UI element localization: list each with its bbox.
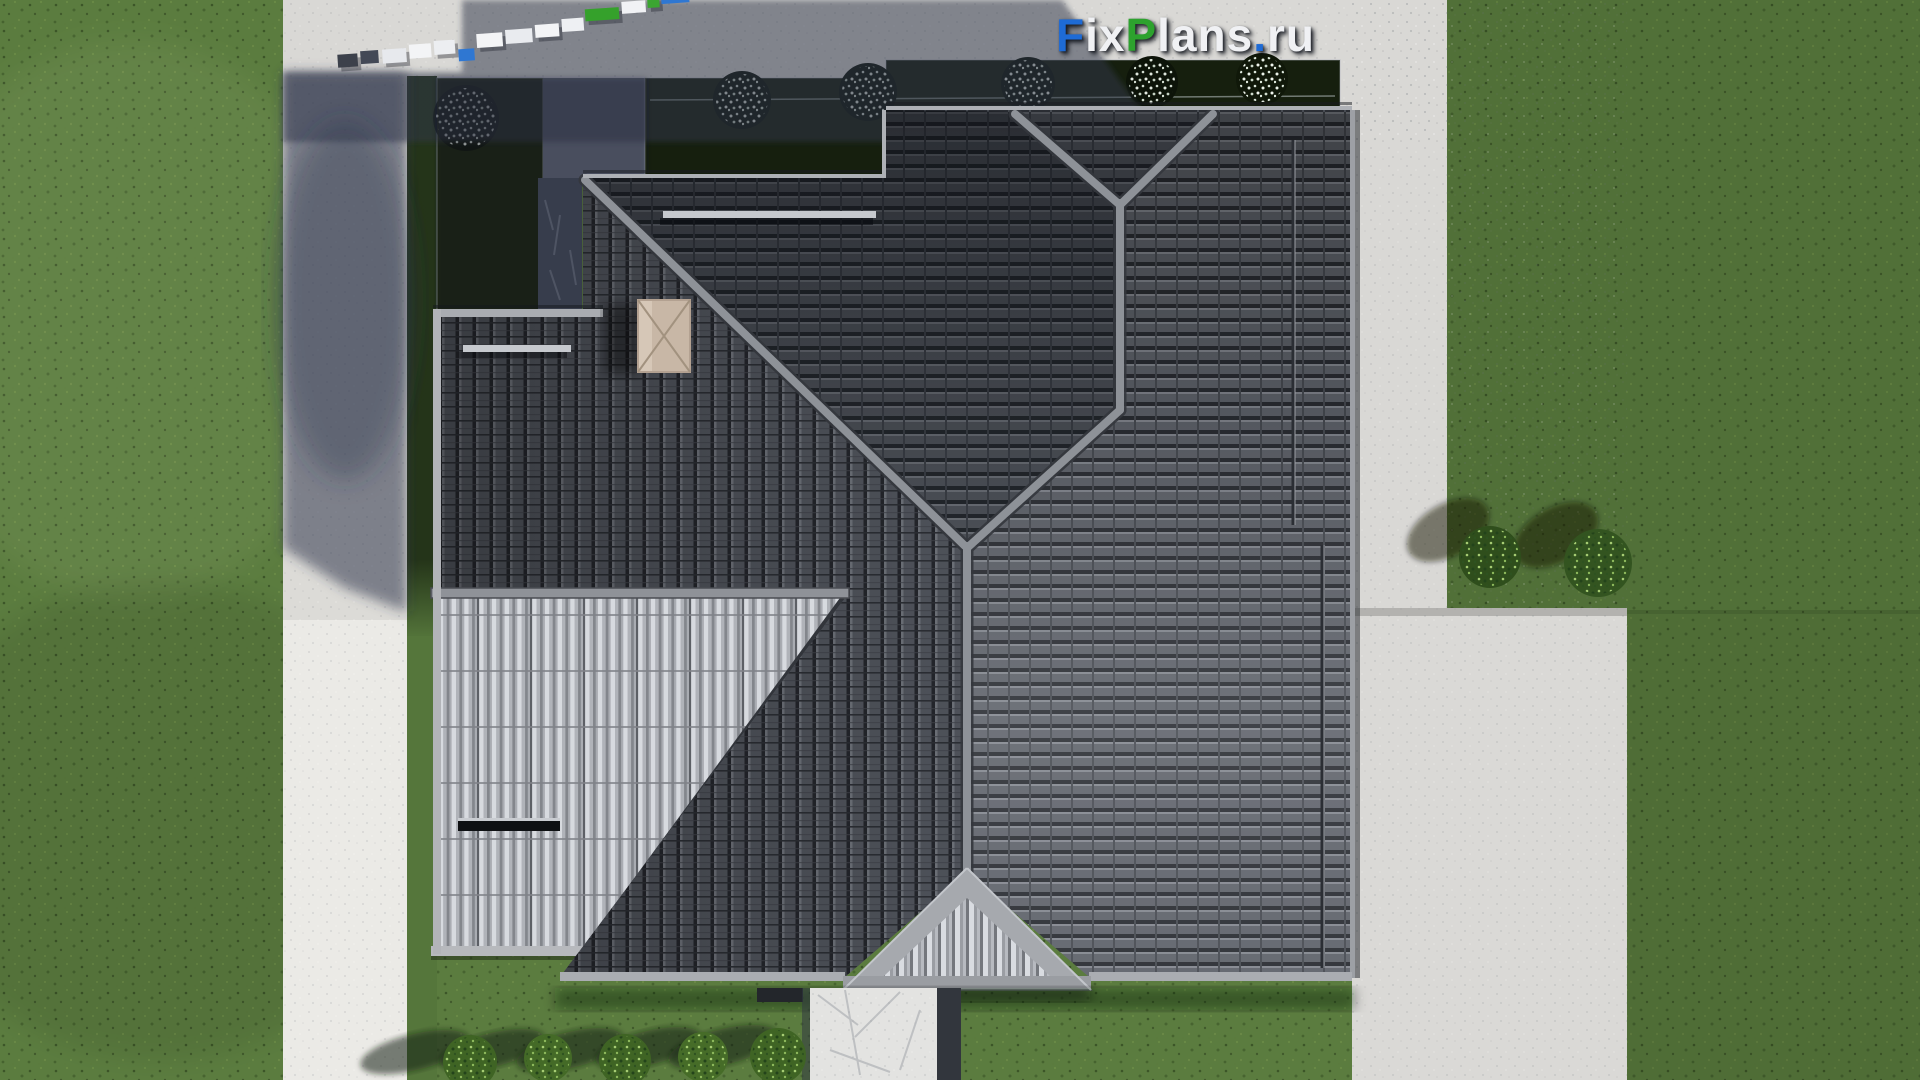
scene-canvas <box>0 0 1920 1080</box>
chimney <box>604 300 690 374</box>
terrace-gutter-bar <box>458 821 560 831</box>
terrace-ridge-band <box>431 588 849 598</box>
watermark-logo: FixPlans.ru <box>1056 8 1315 62</box>
watermark-letter: P <box>1125 9 1157 61</box>
watermark-letter: F <box>1056 9 1085 61</box>
aerial-render-scene: FixPlans.ru <box>0 0 1920 1080</box>
watermark-letter: . <box>1253 9 1267 61</box>
lawn-bottom-right <box>1627 610 1920 1080</box>
walkway-border <box>937 988 961 1080</box>
watermark-letter: lans <box>1157 9 1253 61</box>
watermark-letter: ix <box>1085 9 1125 61</box>
watermark-letter: ru <box>1267 9 1315 61</box>
